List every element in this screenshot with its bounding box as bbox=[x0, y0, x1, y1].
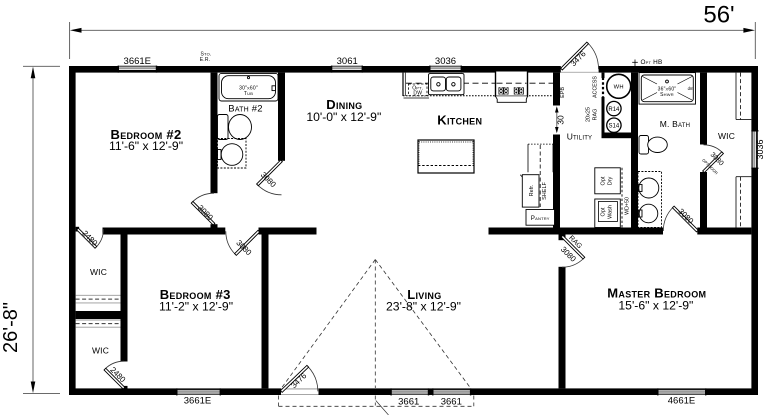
svg-text:WIC: WIC bbox=[90, 267, 107, 277]
svg-text:10'-0" x 12'-9": 10'-0" x 12'-9" bbox=[306, 110, 381, 124]
svg-text:Bath #2: Bath #2 bbox=[228, 104, 262, 115]
svg-text:SHELF: SHELF bbox=[542, 181, 548, 199]
svg-text:E.R.: E.R. bbox=[200, 57, 211, 63]
svg-text:11'-6" x 12'-9": 11'-6" x 12'-9" bbox=[109, 139, 183, 153]
svg-text:3661E: 3661E bbox=[184, 396, 211, 407]
svg-text:Refr.: Refr. bbox=[529, 184, 535, 196]
svg-text:WIC: WIC bbox=[718, 131, 735, 141]
svg-text:3661: 3661 bbox=[398, 397, 419, 408]
svg-text:RAG: RAG bbox=[592, 109, 598, 121]
svg-text:11'-2" x 12'-9": 11'-2" x 12'-9" bbox=[159, 300, 233, 314]
svg-text:ACCESS: ACCESS bbox=[593, 76, 599, 98]
svg-text:3036: 3036 bbox=[755, 139, 765, 159]
svg-text:Tub: Tub bbox=[244, 91, 253, 97]
svg-text:M. Bath: M. Bath bbox=[660, 119, 690, 129]
svg-text:DW: DW bbox=[413, 91, 422, 97]
svg-text:Utility: Utility bbox=[567, 132, 593, 142]
svg-text:Shwr: Shwr bbox=[660, 92, 674, 98]
svg-text:30: 30 bbox=[556, 115, 566, 125]
svg-text:56': 56' bbox=[703, 2, 734, 29]
svg-text:Kitchen: Kitchen bbox=[437, 113, 482, 128]
svg-text:dm: dm bbox=[688, 86, 694, 91]
svg-text:EPB: EPB bbox=[560, 87, 566, 98]
svg-text:4661E: 4661E bbox=[668, 396, 695, 407]
svg-text:WIC: WIC bbox=[92, 346, 109, 356]
svg-text:26'-8": 26'-8" bbox=[0, 302, 22, 353]
svg-text:23'-8" x 12'-9": 23'-8" x 12'-9" bbox=[386, 299, 461, 313]
svg-text:3661: 3661 bbox=[441, 397, 462, 408]
svg-text:R14: R14 bbox=[608, 107, 620, 113]
svg-text:15'-6" x 12'-9": 15'-6" x 12'-9" bbox=[618, 299, 693, 313]
svg-text:WH: WH bbox=[614, 84, 624, 90]
svg-text:3036: 3036 bbox=[435, 56, 456, 67]
svg-text:WD+50: WD+50 bbox=[625, 197, 631, 215]
svg-text:3661E: 3661E bbox=[124, 56, 151, 67]
svg-text:Opt: Opt bbox=[601, 207, 607, 216]
svg-text:3061: 3061 bbox=[337, 56, 358, 67]
svg-text:Opt: Opt bbox=[601, 176, 607, 185]
svg-text:Opt HB: Opt HB bbox=[641, 59, 663, 66]
svg-text:S14: S14 bbox=[609, 123, 620, 129]
svg-text:Dry: Dry bbox=[608, 176, 614, 185]
svg-text:Pantry: Pantry bbox=[531, 215, 550, 222]
svg-text:20x25: 20x25 bbox=[586, 107, 592, 122]
svg-text:Wash: Wash bbox=[608, 205, 614, 219]
